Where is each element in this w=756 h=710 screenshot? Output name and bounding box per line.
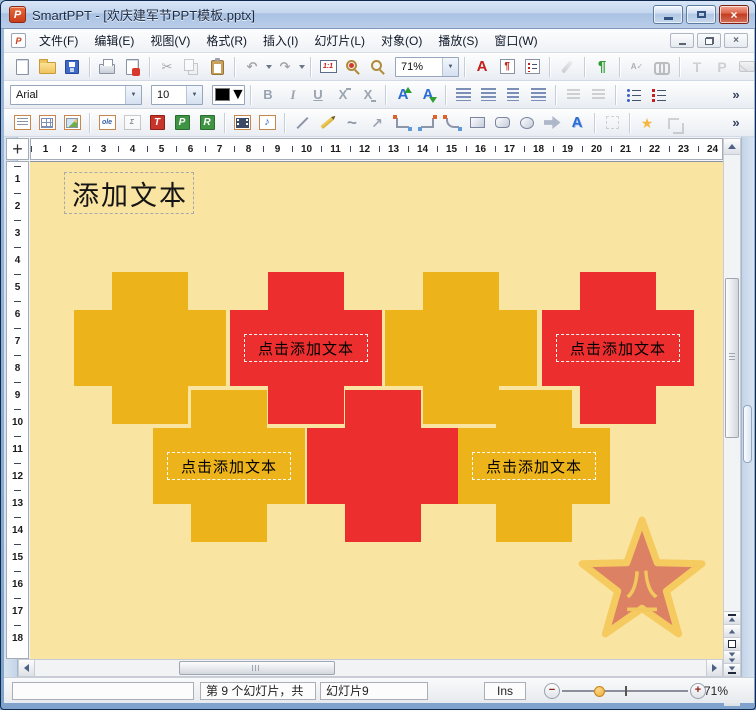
separator (310, 57, 311, 77)
bar-icon (728, 672, 736, 674)
undo-button[interactable]: ↶ (240, 56, 264, 78)
bold-icon: B (263, 88, 272, 101)
v-ruler-mark-10: 10 (7, 409, 28, 436)
scroll-right-button[interactable] (706, 660, 722, 676)
separator (619, 57, 620, 77)
copy-button[interactable] (180, 56, 204, 78)
decrease-indent-icon (567, 89, 580, 101)
horizontal-scrollbar-thumb[interactable] (179, 661, 335, 675)
arrow-ne-icon: ↗ (371, 116, 383, 130)
app-body: P 文件(F)编辑(E)视图(V)格式(R)插入(I)幻灯片(L)对象(O)播放… (4, 29, 754, 703)
toolbar-overflow-button[interactable]: » (724, 112, 748, 134)
menu-item-1[interactable]: 文件(F) (31, 29, 86, 52)
insert-mode-field[interactable]: Ins (484, 682, 526, 700)
separator (584, 57, 585, 77)
v-ruler-mark-9: 9 (7, 382, 28, 409)
child-window-controls: × (670, 33, 750, 48)
v-ruler-mark-7: 7 (7, 328, 28, 355)
increase-indent-icon (592, 89, 605, 101)
cross-horizontal-bar (74, 310, 226, 386)
draw-rounded-rectangle-button[interactable] (490, 112, 514, 134)
font-color-icon: A (477, 59, 488, 74)
separator (629, 113, 630, 133)
color-swatch-icon (215, 88, 230, 101)
next-slide-icon-2 (729, 658, 735, 662)
paragraph-settings-button[interactable]: ¶ (495, 56, 519, 78)
text-mode-t-button[interactable]: T (685, 56, 709, 78)
connector-elbow-button[interactable] (415, 112, 439, 134)
zoom-select[interactable]: 71% ▼ (395, 57, 459, 77)
menu-item-6[interactable]: 幻灯片(L) (306, 29, 373, 52)
v-ruler-mark-6: 6 (7, 301, 28, 328)
zoom-slider-tick (625, 686, 627, 696)
text-placeholder[interactable]: 点击添加文本 (244, 334, 368, 362)
right-arrow-icon (712, 664, 717, 672)
overflow-icon: » (732, 116, 739, 129)
ruler-origin-crosshair: + (6, 138, 29, 160)
text-mode-p-button[interactable]: P (710, 56, 734, 78)
zoom-slider-track[interactable] (562, 683, 688, 699)
rectangle-icon (470, 117, 485, 128)
zoom-100-button[interactable]: 1:1 (316, 56, 340, 78)
insert-video-button[interactable] (230, 112, 254, 134)
bold-button[interactable]: B (256, 84, 280, 106)
v-ruler-mark-16: 16 (7, 571, 28, 598)
group-icon (606, 116, 619, 129)
h-ruler-mark-6: 6 (176, 139, 205, 159)
find-button[interactable] (650, 56, 674, 78)
slide-position-field: 第 9 个幻灯片，共 (200, 682, 316, 700)
underline-button[interactable]: U (306, 84, 330, 106)
zoom-100-icon: 1:1 (320, 60, 337, 73)
separator (464, 57, 465, 77)
draw-line-button[interactable] (290, 112, 314, 134)
separator (89, 113, 90, 133)
insert-formula-icon: Σ (124, 115, 141, 130)
h-ruler-mark-15: 15 (437, 139, 466, 159)
insert-image-button[interactable] (60, 112, 84, 134)
print-button[interactable] (95, 56, 119, 78)
crop-button[interactable] (660, 112, 684, 134)
group-button[interactable] (600, 112, 624, 134)
connector-straight-icon (396, 118, 409, 128)
wordart-icon: A (572, 115, 583, 130)
h-ruler-mark-22: 22 (640, 139, 669, 159)
insert-wordart-button[interactable]: A (565, 112, 589, 134)
spellcheck-button[interactable]: A✓ (625, 56, 649, 78)
v-ruler-mark-15: 15 (7, 544, 28, 571)
increase-indent-button[interactable] (586, 84, 610, 106)
export-pdf-button[interactable] (120, 56, 144, 78)
window-controls: × (653, 5, 749, 24)
subscript-icon: X (364, 88, 373, 101)
pilcrow-icon: ¶ (598, 59, 606, 74)
h-ruler-mark-10: 10 (292, 139, 321, 159)
shrink-font-button[interactable]: A (416, 84, 440, 106)
numbered-list-icon (651, 88, 666, 101)
italic-button[interactable]: I (281, 84, 305, 106)
v-ruler-mark-12: 12 (7, 463, 28, 490)
draw-freehand-button[interactable] (315, 112, 339, 134)
separator (385, 85, 386, 105)
save-icon (65, 60, 79, 74)
menu-bar: P 文件(F)编辑(E)视图(V)格式(R)插入(I)幻灯片(L)对象(O)播放… (4, 29, 754, 53)
scroll-up-button[interactable] (724, 139, 740, 155)
menu-item-2[interactable]: 编辑(E) (86, 29, 142, 52)
zoom-out-button[interactable] (366, 56, 390, 78)
separator (549, 57, 550, 77)
menu-item-5[interactable]: 插入(I) (255, 29, 306, 52)
paragraph-settings-icon: ¶ (500, 59, 515, 74)
text-mode-t-icon: T (693, 60, 702, 74)
superscript-icon: X (339, 88, 348, 101)
first-slide-icon (729, 618, 735, 622)
child-restore-icon (705, 37, 714, 45)
drawing-toolbar: ole Σ T P R ♪ ~ ↗ A ★ » (4, 109, 754, 137)
previous-slide-button[interactable] (724, 624, 740, 637)
insert-ole-button[interactable]: ole (95, 112, 119, 134)
insert-audio-button[interactable]: ♪ (255, 112, 279, 134)
v-ruler-mark-4: 4 (7, 247, 28, 274)
cut-button[interactable]: ✂ (155, 56, 179, 78)
next-slide-button[interactable] (724, 650, 740, 663)
v-ruler-mark-17: 17 (7, 598, 28, 625)
outline-settings-icon (525, 59, 540, 74)
placeholder-frame-p-icon: P (175, 115, 190, 130)
shrink-font-arrow-icon (429, 97, 437, 103)
font-name-select[interactable]: Arial ▼ (10, 85, 142, 105)
numbered-list-button[interactable] (646, 84, 670, 106)
underline-icon: U (313, 88, 322, 101)
paste-button[interactable] (205, 56, 229, 78)
h-ruler-mark-2: 2 (60, 139, 89, 159)
open-button[interactable] (35, 56, 59, 78)
maximize-icon (697, 11, 706, 18)
h-ruler-mark-24: 24 (698, 139, 723, 159)
cross-shape-5-yellow[interactable]: 点击添加文本 (153, 390, 305, 542)
left-arrow-icon (24, 664, 29, 672)
separator (445, 85, 446, 105)
cut-icon: ✂ (162, 60, 173, 73)
slide-name-field: 幻灯片9 (320, 682, 428, 700)
italic-icon: I (290, 88, 295, 101)
vertical-ruler: 123456789101112131415161718 (6, 161, 29, 659)
scroll-left-button[interactable] (19, 660, 35, 676)
v-ruler-mark-2: 2 (7, 193, 28, 220)
h-ruler-mark-8: 8 (234, 139, 263, 159)
redo-icon: ↷ (280, 60, 291, 73)
last-slide-icon (729, 667, 735, 671)
separator (594, 113, 595, 133)
export-pdf-icon (126, 59, 139, 75)
h-ruler-mark-19: 19 (553, 139, 582, 159)
insert-placeholder-frame-button[interactable]: P (170, 112, 194, 134)
document-icon-letter: P (15, 36, 21, 46)
child-close-icon: × (733, 36, 739, 46)
spellcheck-icon: A✓ (631, 62, 643, 71)
h-ruler-mark-7: 7 (205, 139, 234, 159)
right-splitter-handle[interactable] (743, 405, 752, 463)
zoom-slider-thumb[interactable] (594, 686, 605, 697)
slide-overview-button[interactable] (724, 637, 740, 650)
insert-formula-button[interactable]: Σ (120, 112, 144, 134)
font-size-value: 10 (157, 89, 169, 101)
document-icon: P (11, 33, 26, 48)
cross-shape-7-yellow[interactable]: 点击添加文本 (458, 390, 610, 542)
separator (615, 85, 616, 105)
cross-shape-6-red[interactable] (307, 390, 459, 542)
child-minimize-button[interactable] (670, 33, 694, 48)
draw-block-arrow-button[interactable] (540, 112, 564, 134)
h-ruler-mark-16: 16 (466, 139, 495, 159)
draw-curve-button[interactable]: ~ (340, 112, 364, 134)
insert-star-button[interactable]: ★ (635, 112, 659, 134)
block-arrow-icon (544, 116, 561, 129)
menu-items: 文件(F)编辑(E)视图(V)格式(R)插入(I)幻灯片(L)对象(O)播放(S… (31, 29, 546, 52)
star-char-bottom: 一 (626, 594, 657, 629)
h-ruler-mark-5: 5 (147, 139, 176, 159)
slide-overview-icon (728, 640, 736, 648)
font-name-value: Arial (16, 89, 38, 101)
maximize-button[interactable] (686, 5, 716, 24)
status-message-field (12, 682, 194, 700)
v-ruler-mark-14: 14 (7, 517, 28, 544)
new-document-icon (16, 59, 29, 75)
undo-dropdown-arrow[interactable] (266, 65, 272, 69)
next-slide-icon (729, 652, 735, 656)
insert-textbox-button[interactable] (10, 112, 34, 134)
subscript-button[interactable]: X (356, 84, 380, 106)
v-ruler-mark-8: 8 (7, 355, 28, 382)
align-left-button[interactable] (451, 84, 475, 106)
zoom-out-icon (371, 60, 382, 71)
insert-audio-icon: ♪ (259, 115, 276, 130)
send-mail-button[interactable] (735, 56, 756, 78)
insert-video-icon (234, 115, 251, 130)
cross-horizontal-bar (307, 428, 459, 504)
text-mode-p-icon: P (717, 60, 726, 74)
app-window: P SmartPPT - [欢庆建军节PPT模板.pptx] × P 文件(F)… (0, 0, 756, 710)
text-frame-t-icon: T (150, 115, 165, 130)
draw-ellipse-button[interactable] (515, 112, 539, 134)
text-placeholder[interactable]: 点击添加文本 (472, 452, 596, 480)
title-bar[interactable]: P SmartPPT - [欢庆建军节PPT模板.pptx] × (1, 1, 755, 29)
separator (284, 113, 285, 133)
app-icon-letter: P (14, 9, 21, 21)
copy-icon (184, 59, 194, 71)
insert-table-button[interactable] (35, 112, 59, 134)
v-ruler-mark-3: 3 (7, 220, 28, 247)
justify-icon (531, 88, 546, 101)
v-ruler-mark-1: 1 (7, 166, 28, 193)
standard-toolbar: ✂ ↶ ↷ 1:1 71% ▼ A ¶ ¶ A✓ (4, 53, 754, 81)
pencil-icon (320, 116, 333, 128)
close-button[interactable]: × (719, 5, 749, 24)
window-title: SmartPPT - [欢庆建军节PPT模板.pptx] (32, 5, 255, 24)
h-ruler-mark-14: 14 (408, 139, 437, 159)
rounded-rectangle-icon (495, 117, 510, 128)
text-placeholder[interactable]: 点击添加文本 (167, 452, 291, 480)
h-ruler-mark-1: 1 (31, 139, 60, 159)
h-ruler-mark-12: 12 (350, 139, 379, 159)
h-ruler-mark-11: 11 (321, 139, 350, 159)
zoom-decrease-button[interactable]: − (544, 683, 560, 699)
h-ruler-mark-17: 17 (495, 139, 524, 159)
binoculars-icon (654, 62, 670, 72)
h-ruler-mark-9: 9 (263, 139, 292, 159)
menu-item-9[interactable]: 窗口(W) (486, 29, 545, 52)
save-button[interactable] (60, 56, 84, 78)
h-ruler-mark-21: 21 (611, 139, 640, 159)
v-ruler-mark-18: 18 (7, 625, 28, 652)
menu-item-7[interactable]: 对象(O) (373, 29, 430, 52)
new-document-button[interactable] (10, 56, 34, 78)
h-ruler-mark-3: 3 (89, 139, 118, 159)
undo-icon: ↶ (247, 60, 258, 73)
h-ruler-mark-18: 18 (524, 139, 553, 159)
connector-straight-button[interactable] (390, 112, 414, 134)
menu-item-3[interactable]: 视图(V) (142, 29, 198, 52)
decrease-indent-button[interactable] (561, 84, 585, 106)
zoom-in-icon (346, 60, 357, 71)
separator (224, 113, 225, 133)
insert-textbox-icon (14, 115, 31, 130)
curve-icon: ~ (347, 114, 357, 131)
v-ruler-mark-5: 5 (7, 274, 28, 301)
zoom-in-button[interactable] (341, 56, 365, 78)
status-bar: 第 9 个幻灯片，共 幻灯片9 Ins − + 71% (4, 677, 754, 703)
connector-curved-icon (446, 118, 459, 128)
align-right-icon (481, 88, 496, 101)
formatting-toolbar: Arial ▼ 10 ▼ ▼ B I U X X A A (4, 81, 754, 109)
report-frame-r-icon: R (200, 115, 215, 130)
h-ruler-mark-4: 4 (118, 139, 147, 159)
separator (149, 57, 150, 77)
zoom-control: − + (544, 683, 706, 699)
v-ruler-mark-11: 11 (7, 436, 28, 463)
separator (89, 57, 90, 77)
separator (679, 57, 680, 77)
align-center-icon (507, 88, 519, 101)
font-name-dropdown[interactable]: ▼ (125, 86, 141, 104)
separator (234, 57, 235, 77)
connector-elbow-icon (421, 118, 434, 128)
child-minimize-icon (679, 43, 686, 45)
crop-icon (668, 118, 679, 129)
font-color-swatch[interactable]: ▼ (212, 85, 245, 105)
h-ruler-mark-20: 20 (582, 139, 611, 159)
horizontal-scrollbar[interactable] (18, 659, 723, 677)
line-icon (296, 116, 308, 128)
redo-button[interactable]: ↷ (273, 56, 297, 78)
format-painter-icon (561, 60, 573, 73)
separator (250, 85, 251, 105)
font-size-dropdown[interactable]: ▼ (186, 86, 202, 104)
font-size-select[interactable]: 10 ▼ (151, 85, 203, 105)
first-slide-button[interactable] (724, 611, 740, 624)
minimize-icon (664, 17, 673, 20)
menu-item-8[interactable]: 播放(S) (430, 29, 486, 52)
overflow-icon: » (732, 88, 739, 101)
close-icon: × (730, 8, 737, 22)
outline-settings-button[interactable] (520, 56, 544, 78)
slide-canvas[interactable]: 添加文本 八 一 点击添加文本点击添加文本点击添加文本点击添加文本 (30, 161, 723, 659)
draw-rectangle-button[interactable] (465, 112, 489, 134)
format-painter-button[interactable] (555, 56, 579, 78)
font-color-button[interactable]: A (470, 56, 494, 78)
color-swatch-dropdown[interactable]: ▼ (230, 86, 242, 104)
ellipse-icon (520, 117, 534, 129)
previous-slide-icon (729, 629, 735, 633)
insert-image-icon (64, 115, 81, 130)
justify-button[interactable] (526, 84, 550, 106)
redo-dropdown-arrow[interactable] (299, 65, 305, 69)
align-center-button[interactable] (501, 84, 525, 106)
child-restore-button[interactable] (697, 33, 721, 48)
open-folder-icon (39, 62, 56, 74)
align-left-icon (456, 88, 471, 101)
bullet-list-button[interactable] (621, 84, 645, 106)
zoom-select-dropdown[interactable]: ▼ (442, 58, 458, 76)
show-formatting-marks-button[interactable]: ¶ (590, 56, 614, 78)
app-icon: P (9, 6, 26, 23)
grow-font-arrow-icon (404, 87, 412, 93)
star-tool-icon: ★ (641, 116, 654, 130)
up-arrow-icon (728, 144, 736, 149)
grow-font-button[interactable]: A (391, 84, 415, 106)
zoom-percent-label: 71% (704, 684, 728, 698)
mail-icon (739, 61, 755, 72)
zoom-select-value: 71% (401, 61, 423, 73)
toolbar-overflow-button[interactable]: » (724, 84, 748, 106)
cross-horizontal-bar (385, 310, 537, 386)
h-ruler-mark-23: 23 (669, 139, 698, 159)
connector-curved-button[interactable] (440, 112, 464, 134)
insert-report-frame-button[interactable]: R (195, 112, 219, 134)
horizontal-ruler: 1234567891011121314151617181920212223242… (30, 138, 723, 160)
superscript-button[interactable]: X (331, 84, 355, 106)
vertical-scrollbar[interactable] (723, 138, 741, 677)
v-ruler-mark-13: 13 (7, 490, 28, 517)
bullet-list-icon (626, 88, 641, 101)
slide-title-placeholder[interactable]: 添加文本 (64, 172, 194, 214)
insert-table-icon (39, 115, 56, 130)
align-right-button[interactable] (476, 84, 500, 106)
menu-item-4[interactable]: 格式(R) (198, 29, 255, 52)
insert-text-frame-button[interactable]: T (145, 112, 169, 134)
print-icon (99, 64, 115, 74)
text-placeholder[interactable]: 点击添加文本 (556, 334, 680, 362)
last-slide-button[interactable] (724, 663, 740, 676)
h-ruler-mark-13: 13 (379, 139, 408, 159)
vertical-scrollbar-thumb[interactable] (725, 278, 739, 438)
draw-arrow-button[interactable]: ↗ (365, 112, 389, 134)
paste-icon (211, 60, 224, 75)
minimize-button[interactable] (653, 5, 683, 24)
right-pane-strip (741, 137, 754, 677)
child-close-button[interactable]: × (724, 33, 748, 48)
bar-icon (728, 614, 736, 616)
separator (555, 85, 556, 105)
insert-ole-icon: ole (99, 115, 116, 130)
